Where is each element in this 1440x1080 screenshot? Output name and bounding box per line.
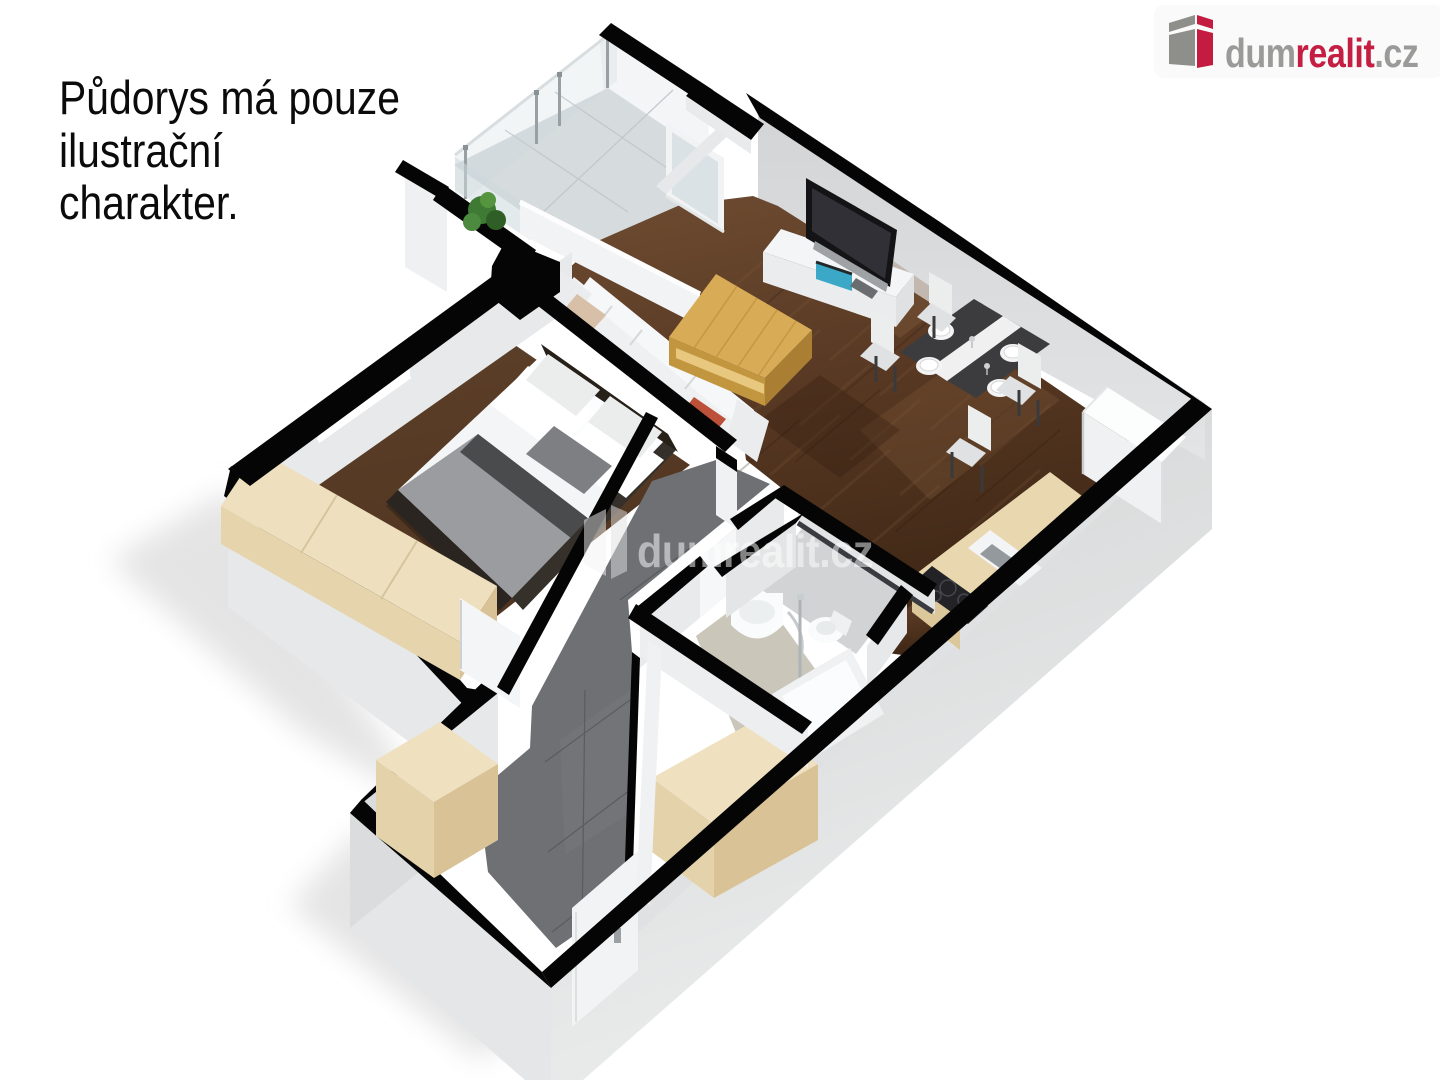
- svg-text:dumrealit.cz: dumrealit.cz: [1225, 30, 1418, 76]
- svg-text:dumrealit.cz: dumrealit.cz: [637, 526, 873, 578]
